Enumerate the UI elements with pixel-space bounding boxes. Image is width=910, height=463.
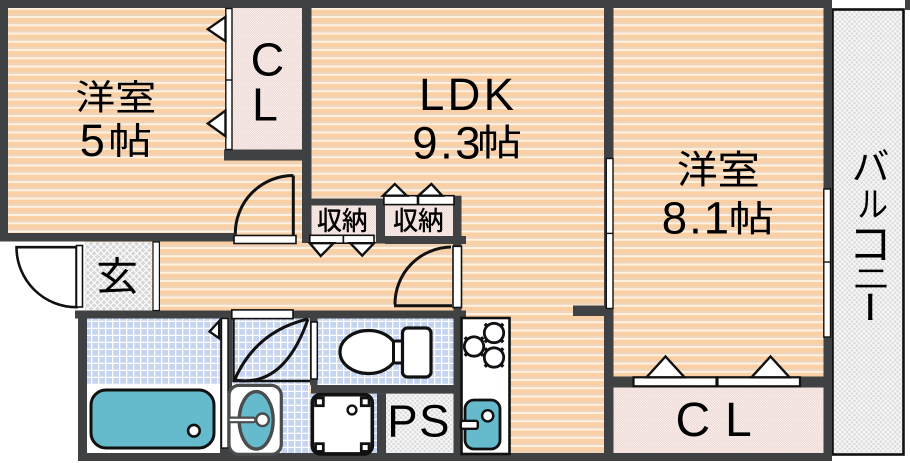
svg-text:8.1: 8.1 [662,193,731,244]
svg-text:L: L [725,394,752,447]
svg-text:PS: PS [387,395,451,446]
svg-text:C: C [676,394,711,447]
svg-text:LDK: LDK [419,69,517,120]
svg-text:C: C [251,33,285,85]
svg-text:L: L [252,79,278,131]
svg-text:5: 5 [80,115,105,166]
svg-text:9.3: 9.3 [412,118,483,169]
